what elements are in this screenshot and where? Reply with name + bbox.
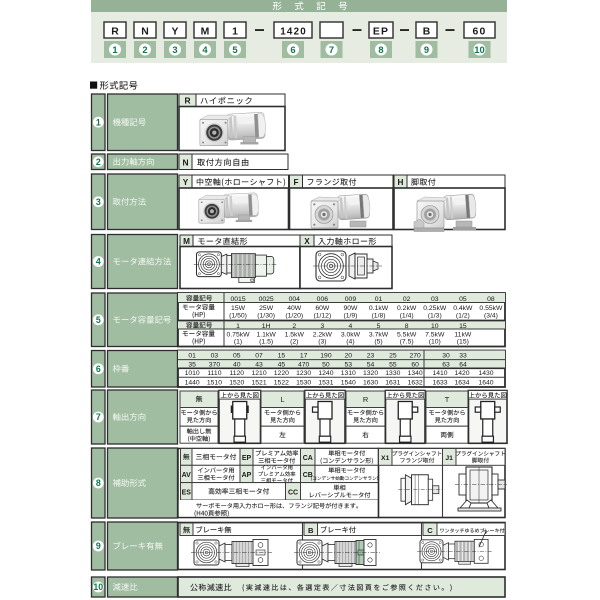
svg-text:370: 370 xyxy=(209,361,221,368)
svg-text:1440: 1440 xyxy=(185,379,200,386)
svg-text:C: C xyxy=(427,526,433,535)
svg-text:50: 50 xyxy=(322,361,330,368)
svg-text:6: 6 xyxy=(96,364,101,374)
svg-text:15W: 15W xyxy=(231,305,246,312)
svg-text:64: 64 xyxy=(459,361,467,368)
svg-text:25W: 25W xyxy=(259,305,274,312)
svg-text:1H: 1H xyxy=(262,323,271,330)
svg-text:90W: 90W xyxy=(343,305,358,312)
svg-text:1310: 1310 xyxy=(341,370,356,377)
svg-text:(1/30): (1/30) xyxy=(257,312,275,319)
svg-text:60: 60 xyxy=(473,26,487,37)
svg-text:1: 1 xyxy=(232,26,238,37)
svg-text:3: 3 xyxy=(172,44,177,55)
svg-text:(3/4): (3/4) xyxy=(484,312,498,319)
svg-text:(3): (3) xyxy=(318,339,326,346)
svg-text:1510: 1510 xyxy=(207,379,222,386)
svg-text:2.2kW: 2.2kW xyxy=(313,331,333,338)
svg-text:R: R xyxy=(111,26,119,37)
svg-text:CA: CA xyxy=(303,455,313,462)
svg-text:33: 33 xyxy=(459,352,467,359)
svg-text:2: 2 xyxy=(96,157,101,167)
svg-text:(1.5): (1.5) xyxy=(259,339,273,346)
svg-text:0015: 0015 xyxy=(230,296,245,303)
svg-text:0.4kW: 0.4kW xyxy=(453,305,473,312)
svg-text:(1/3): (1/3) xyxy=(428,312,442,319)
svg-text:1220: 1220 xyxy=(274,370,289,377)
svg-text:35: 35 xyxy=(188,361,196,368)
svg-text:63: 63 xyxy=(442,361,450,368)
svg-text:1320: 1320 xyxy=(363,370,378,377)
svg-text:N: N xyxy=(182,157,188,167)
svg-text:05: 05 xyxy=(459,296,467,303)
svg-text:0025: 0025 xyxy=(259,296,274,303)
svg-text:4: 4 xyxy=(96,257,101,267)
svg-text:0.75kW: 0.75kW xyxy=(227,331,251,338)
svg-text:N: N xyxy=(141,26,149,37)
svg-text:6: 6 xyxy=(290,44,295,55)
svg-text:M: M xyxy=(183,237,190,246)
svg-text:7: 7 xyxy=(329,44,334,55)
svg-text:3: 3 xyxy=(320,323,324,330)
svg-text:60: 60 xyxy=(411,361,419,368)
svg-text:(1/12): (1/12) xyxy=(313,312,331,319)
svg-text:M: M xyxy=(201,26,210,37)
svg-text:Y: Y xyxy=(172,26,179,37)
svg-text:0.25kW: 0.25kW xyxy=(423,305,447,312)
svg-text:EP: EP xyxy=(242,455,252,462)
svg-text:7: 7 xyxy=(96,412,101,422)
svg-text:3: 3 xyxy=(96,197,101,207)
svg-text:15: 15 xyxy=(459,323,467,330)
svg-text:25: 25 xyxy=(389,352,397,359)
svg-text:01: 01 xyxy=(375,296,383,303)
svg-text:5: 5 xyxy=(232,44,237,55)
svg-text:470: 470 xyxy=(298,361,310,368)
svg-text:1: 1 xyxy=(112,44,117,55)
svg-text:L: L xyxy=(280,395,284,404)
svg-text:17: 17 xyxy=(300,352,308,359)
svg-text:(1/20): (1/20) xyxy=(285,312,303,319)
svg-text:20: 20 xyxy=(344,352,352,359)
svg-text:1.1kW: 1.1kW xyxy=(257,331,277,338)
svg-text:(7.5): (7.5) xyxy=(400,339,414,346)
svg-text:R: R xyxy=(363,395,368,404)
svg-text:1210: 1210 xyxy=(251,370,266,377)
svg-text:1420: 1420 xyxy=(454,370,469,377)
svg-text:T: T xyxy=(445,395,450,404)
svg-text:10: 10 xyxy=(93,582,103,592)
svg-text:43: 43 xyxy=(255,361,263,368)
svg-text:2: 2 xyxy=(142,44,147,55)
svg-text:3.0kW: 3.0kW xyxy=(341,331,361,338)
svg-text:Y: Y xyxy=(183,178,189,187)
svg-text:1330: 1330 xyxy=(385,370,400,377)
svg-text:1633: 1633 xyxy=(432,379,447,386)
svg-text:004: 004 xyxy=(289,296,301,303)
svg-text:02: 02 xyxy=(403,296,411,303)
svg-text:1630: 1630 xyxy=(363,379,378,386)
svg-text:1340: 1340 xyxy=(408,370,423,377)
svg-text:1520: 1520 xyxy=(229,379,244,386)
svg-text:(4): (4) xyxy=(346,339,354,346)
svg-text:J1: J1 xyxy=(445,455,453,462)
svg-text:1531: 1531 xyxy=(318,379,333,386)
svg-text:1634: 1634 xyxy=(454,379,469,386)
svg-text:1230: 1230 xyxy=(296,370,311,377)
svg-text:H: H xyxy=(398,178,404,187)
svg-text:1631: 1631 xyxy=(385,379,400,386)
svg-text:1010: 1010 xyxy=(185,370,200,377)
svg-text:(1/50): (1/50) xyxy=(229,312,247,319)
svg-text:(1/4): (1/4) xyxy=(400,312,414,319)
svg-text:60W: 60W xyxy=(315,305,330,312)
svg-text:54: 54 xyxy=(367,361,375,368)
svg-text:AP: AP xyxy=(242,472,252,479)
svg-text:55: 55 xyxy=(389,361,397,368)
svg-text:05: 05 xyxy=(233,352,241,359)
svg-text:1640: 1640 xyxy=(478,379,493,386)
svg-text:B: B xyxy=(423,26,431,37)
svg-text:1430: 1430 xyxy=(478,370,493,377)
svg-text:03: 03 xyxy=(431,296,439,303)
svg-text:8: 8 xyxy=(378,44,383,55)
svg-text:190: 190 xyxy=(320,352,332,359)
svg-text:1110: 1110 xyxy=(207,370,221,377)
svg-text:CC: CC xyxy=(288,490,298,497)
svg-text:7.5kW: 7.5kW xyxy=(425,331,445,338)
svg-text:9: 9 xyxy=(424,44,429,55)
svg-text:X1: X1 xyxy=(381,455,390,462)
svg-text:1522: 1522 xyxy=(274,379,289,386)
svg-text:10: 10 xyxy=(431,323,439,330)
svg-text:009: 009 xyxy=(345,296,357,303)
svg-text:B: B xyxy=(308,526,314,535)
svg-text:4: 4 xyxy=(202,44,208,55)
svg-text:8: 8 xyxy=(405,323,409,330)
svg-text:30: 30 xyxy=(442,352,450,359)
svg-text:10: 10 xyxy=(474,44,484,55)
svg-text:AV: AV xyxy=(182,472,192,479)
svg-text:01: 01 xyxy=(188,352,196,359)
svg-text:(10): (10) xyxy=(429,339,441,346)
svg-text:40W: 40W xyxy=(287,305,302,312)
svg-text:5.5kW: 5.5kW xyxy=(397,331,417,338)
svg-text:0.55kW: 0.55kW xyxy=(479,305,503,312)
svg-text:(5): (5) xyxy=(374,339,382,346)
svg-text:45: 45 xyxy=(278,361,286,368)
svg-text:53: 53 xyxy=(344,361,352,368)
svg-text:1410: 1410 xyxy=(432,370,447,377)
svg-text:03: 03 xyxy=(211,352,219,359)
svg-text:1420: 1420 xyxy=(280,26,307,37)
svg-text:1240: 1240 xyxy=(318,370,333,377)
svg-text:F: F xyxy=(293,178,298,187)
svg-text:1530: 1530 xyxy=(296,379,311,386)
svg-text:15: 15 xyxy=(278,352,286,359)
svg-text:(2): (2) xyxy=(290,339,298,346)
svg-text:1.5kW: 1.5kW xyxy=(285,331,305,338)
svg-text:1521: 1521 xyxy=(251,379,266,386)
svg-text:40: 40 xyxy=(233,361,241,368)
svg-text:2: 2 xyxy=(292,323,296,330)
svg-text:07: 07 xyxy=(255,352,263,359)
svg-text:R: R xyxy=(184,96,190,106)
svg-text:1540: 1540 xyxy=(341,379,356,386)
svg-text:1: 1 xyxy=(96,117,101,127)
svg-text:5: 5 xyxy=(377,323,381,330)
svg-text:0.1kW: 0.1kW xyxy=(369,305,389,312)
svg-text:(1/2): (1/2) xyxy=(456,312,470,319)
svg-text:006: 006 xyxy=(317,296,329,303)
svg-text:3.7kW: 3.7kW xyxy=(369,331,389,338)
svg-text:(1/9): (1/9) xyxy=(343,312,357,319)
svg-text:11kW: 11kW xyxy=(454,331,471,338)
svg-text:EP: EP xyxy=(373,26,389,37)
svg-text:1632: 1632 xyxy=(408,379,423,386)
svg-text:270: 270 xyxy=(409,352,421,359)
svg-text:X: X xyxy=(304,237,310,246)
svg-text:23: 23 xyxy=(367,352,375,359)
svg-text:5: 5 xyxy=(96,315,101,325)
svg-text:4: 4 xyxy=(349,323,353,330)
svg-text:1120: 1120 xyxy=(229,370,244,377)
svg-text:08: 08 xyxy=(487,296,495,303)
svg-text:8: 8 xyxy=(96,478,101,488)
svg-text:ES: ES xyxy=(182,490,192,497)
svg-text:(1): (1) xyxy=(234,339,242,346)
svg-text:(15): (15) xyxy=(457,339,469,346)
svg-text:(1/8): (1/8) xyxy=(372,312,386,319)
svg-text:9: 9 xyxy=(96,541,101,551)
svg-text:0.2kW: 0.2kW xyxy=(397,305,417,312)
svg-text:1: 1 xyxy=(236,323,240,330)
